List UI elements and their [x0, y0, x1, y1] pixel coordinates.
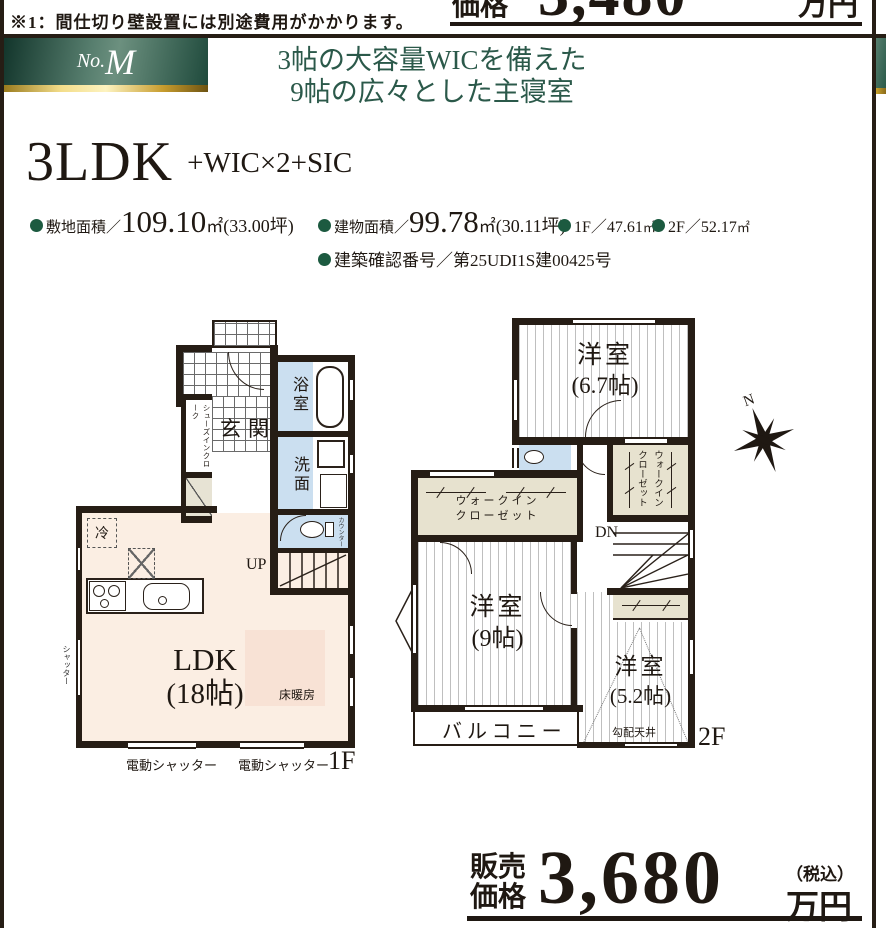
hanger-rod — [426, 492, 486, 493]
casement-window-icon — [394, 588, 414, 654]
balcony-label: バルコニー — [442, 715, 567, 744]
floor2-plan: 洋室 (6.7帖) ウォークイン クローゼット ウォークイン クローゼット DN… — [0, 0, 886, 928]
sale-price-label-line1: 販売 — [467, 853, 529, 883]
window — [625, 437, 667, 445]
window — [688, 530, 695, 558]
sale-price-amount: 3,680 — [538, 840, 724, 916]
toilet-bowl — [524, 450, 544, 464]
room-9-label-block: 洋室 (9帖) — [450, 592, 545, 662]
window — [512, 380, 519, 420]
window — [573, 318, 655, 325]
closet-front-line — [613, 618, 688, 620]
room-5-2-label-block: 洋室 (5.2帖) — [598, 652, 683, 720]
compass-north-label: N — [741, 391, 757, 410]
compass-icon: N — [726, 384, 802, 484]
wall — [571, 542, 577, 594]
stairs-down-label: DN — [595, 524, 618, 542]
wic-right-line2: クローゼット — [634, 450, 648, 507]
room-9-size: (9帖) — [450, 624, 545, 655]
room-9-label: 洋室 — [450, 592, 545, 624]
flyer-page: ※1：間仕切り壁設置には別途費用がかかります。 価格 3,480 万円 No.M… — [0, 0, 886, 928]
hanger-rod — [629, 452, 630, 508]
sale-price-label-line2: 価格 — [467, 883, 529, 913]
window — [512, 448, 519, 468]
room-5-2-entry — [577, 592, 613, 622]
window — [625, 742, 677, 748]
floor2-label: 2F — [698, 722, 725, 752]
closet-5-2 — [613, 595, 688, 620]
wic-left-line1: ウォークイン — [418, 494, 577, 509]
window — [465, 705, 543, 712]
sloped-ceiling-label: 勾配天井 — [612, 724, 656, 740]
wall — [411, 535, 583, 542]
room-5-2-size: (5.2帖) — [598, 682, 683, 711]
hanger-rod — [506, 492, 566, 493]
wall — [607, 588, 695, 595]
wic-left-label: ウォークイン クローゼット — [418, 494, 577, 524]
stairs-down — [613, 522, 688, 588]
hanger-rod — [622, 605, 680, 606]
sale-price-label: 販売 価格 — [467, 853, 529, 913]
hanger-rod — [671, 452, 672, 508]
room-6-7-size: (6.7帖) — [545, 371, 665, 400]
wic-right-label: ウォークイン クローゼット — [634, 450, 664, 507]
window — [430, 470, 494, 478]
wic-left-line2: クローゼット — [418, 509, 577, 524]
wall — [607, 515, 695, 522]
wall — [571, 628, 577, 712]
wall — [512, 437, 695, 445]
wall — [607, 445, 613, 522]
sale-price-underline — [467, 916, 862, 921]
window — [688, 640, 695, 674]
room-5-2-label: 洋室 — [598, 652, 683, 682]
wic-right-line1: ウォークイン — [650, 450, 664, 507]
room-6-7-label-block: 洋室 (6.7帖) — [545, 340, 665, 408]
room-6-7-label: 洋室 — [545, 340, 665, 371]
